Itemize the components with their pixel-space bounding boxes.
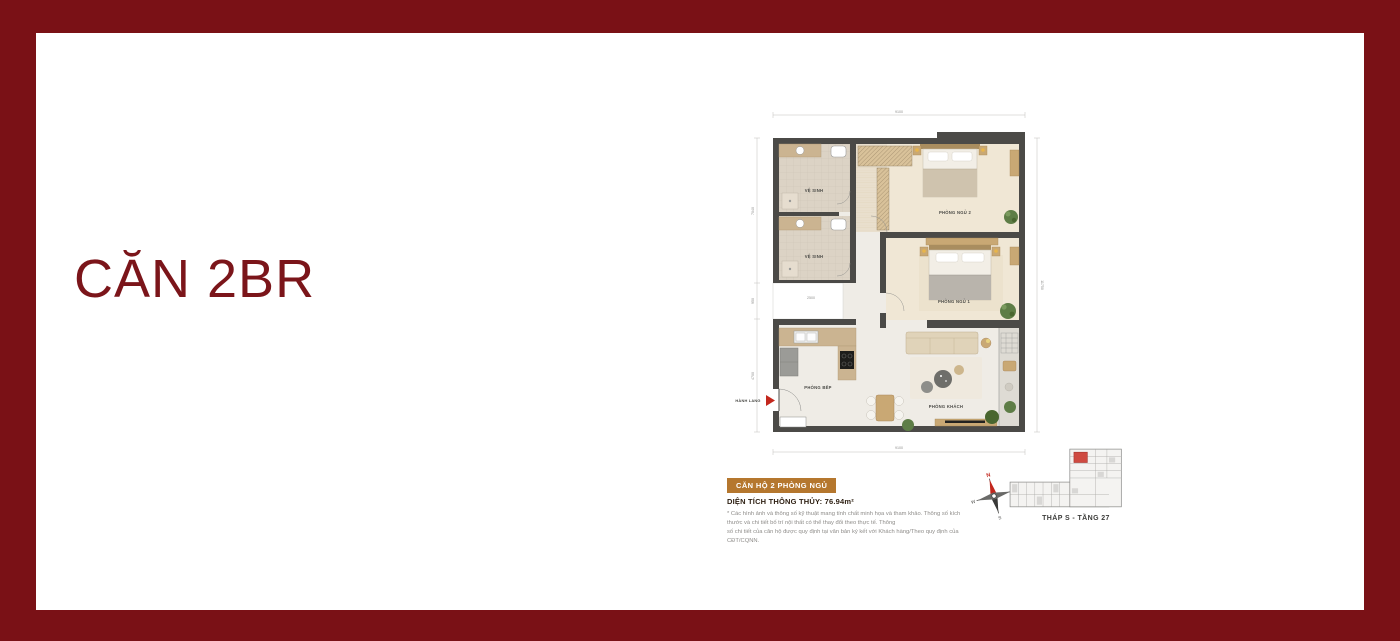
entrance-arrow-icon [766,395,775,406]
bath1-sink [796,147,804,155]
label-living: PHÒNG KHÁCH [929,404,963,409]
entrance-niche: 2500 [773,283,843,319]
label-entrance: HÀNH LANG [735,398,760,403]
dim-niche: 2500 [807,296,815,300]
bath1-toilet [831,146,846,157]
disclaimer-line-1: * Các hình ảnh và thông số kỹ thuật mang… [727,511,960,526]
bedroom2-desk [1010,150,1019,176]
side-table-deco [986,339,990,343]
sofa [906,332,978,354]
tv [945,421,985,424]
wardrobe-top [858,146,912,166]
label-bath1: VỆ SINH [805,188,824,193]
dining-chair [895,397,904,406]
floor-plan-svg: 9100 9100 11750 7040 950 4700 [730,95,1050,465]
locator-caption: THÁP S - TẦNG 27 [1008,515,1144,522]
wardrobe-vertical [877,168,889,230]
dining-table [876,395,894,421]
bed1-headboard [929,245,991,250]
bedroom1-headboard-shelf [926,238,998,245]
bed2-pillow-left [928,152,948,161]
bed1-pillow-left [936,253,958,262]
shoe-cabinet [780,417,806,427]
floor-locator: THÁP S - TẦNG 27 [1008,446,1144,522]
dining-chair [867,411,876,420]
dining-chair [895,411,904,420]
coffee-table-wood [954,365,964,375]
dim-left-lower: 4700 [751,372,755,380]
bed2-lamp-right [981,148,985,152]
dim-left-mid: 950 [751,298,755,304]
slide-canvas: CĂN 2BR [36,33,1364,610]
bath1-drain [789,200,791,202]
dining-chair [867,397,876,406]
floor-locator-plan [1008,446,1144,512]
bed2-pillow-right [952,152,972,161]
bath2-toilet [831,219,846,230]
page-title: CĂN 2BR [74,248,315,310]
unit-type-badge: CĂN HỘ 2 PHÒNG NGỦ [727,478,836,493]
kitchen-stove [840,351,854,369]
compass-n: N [986,472,991,479]
bed2-headboard [920,144,980,149]
bedroom2-plant [1004,210,1018,224]
disclaimer-line-2: số chi tiết của căn hộ được quy định tại… [727,529,959,544]
living-plant-left [902,419,914,431]
bed1-lamp-left [922,249,926,253]
locator-highlighted-unit [1074,452,1087,462]
bath2-drain [789,268,791,270]
bed2-lamp-left [915,148,919,152]
dim-right: 11750 [1040,280,1044,290]
balcony-pot [1005,383,1013,391]
floor-plan: 9100 9100 11750 7040 950 4700 [730,95,1050,465]
compass-w: W [971,499,977,505]
dim-top: 9100 [895,110,903,114]
bedroom1-desk [1010,247,1019,265]
balcony-plant [1004,401,1016,413]
label-bedroom1: PHÒNG NGỦ 1 [938,299,970,304]
disclaimer: * Các hình ảnh và thông số kỹ thuật mang… [727,510,972,546]
coffee-table-large [934,370,952,388]
balcony-chair [1003,361,1016,371]
coffee-table-small [921,381,933,393]
label-bedroom2: PHÒNG NGỦ 2 [939,210,971,215]
living-plant-right [985,410,999,424]
bed2-blanket [923,169,977,197]
bath2-sink [796,220,804,228]
unit-info: CĂN HỘ 2 PHÒNG NGỦ DIỆN TÍCH THÔNG THỦY:… [727,475,972,546]
bed1-blanket [929,275,991,300]
unit-area: DIỆN TÍCH THÔNG THỦY: 76.94m² [727,497,972,506]
slide-frame: CĂN 2BR [0,0,1400,641]
bed1-lamp-right [994,249,998,253]
label-kitchen: PHÒNG BẾP [804,385,831,390]
compass-s: S [998,515,1002,521]
label-bath2: VỆ SINH [805,254,824,259]
bed1-pillow-right [962,253,984,262]
dim-left-upper: 7040 [751,207,755,215]
dim-bottom: 9100 [895,446,903,450]
side-table [981,338,991,348]
